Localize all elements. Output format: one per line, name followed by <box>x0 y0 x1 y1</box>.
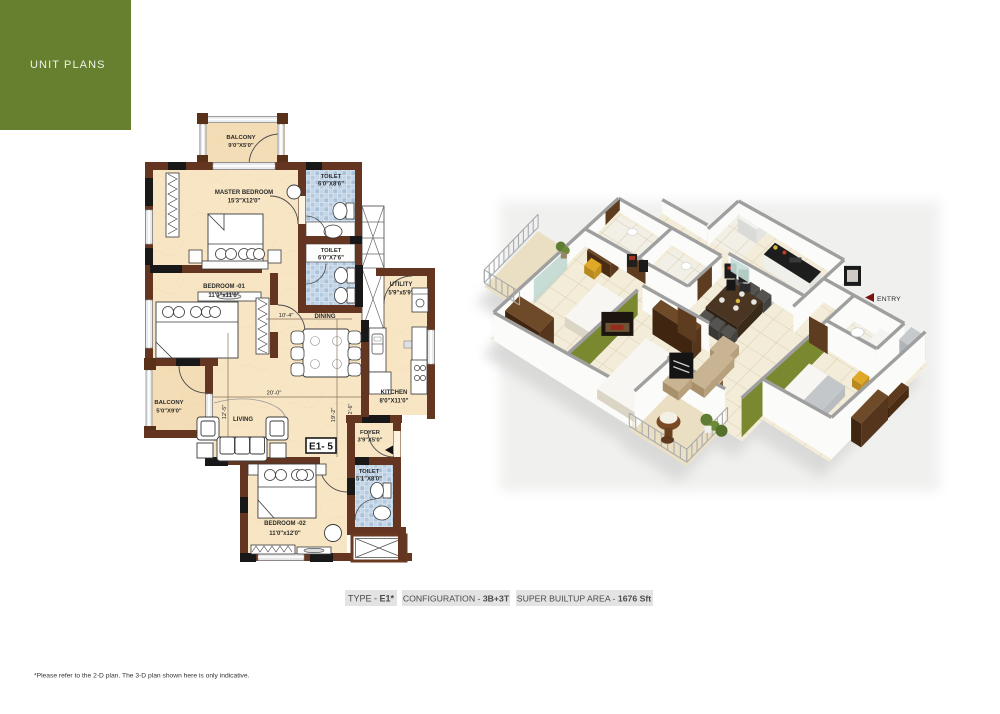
svg-text:BEDROOM -02: BEDROOM -02 <box>264 521 306 527</box>
svg-text:6'0"X8'6": 6'0"X8'6" <box>318 182 344 188</box>
svg-text:3'9"X5'0": 3'9"X5'0" <box>357 438 382 444</box>
svg-text:2'-6": 2'-6" <box>348 404 354 415</box>
svg-text:FOYER: FOYER <box>360 430 381 436</box>
svg-text:12'-5": 12'-5" <box>222 405 228 420</box>
svg-text:LIVING: LIVING <box>233 417 253 423</box>
svg-text:TOILET: TOILET <box>321 248 342 254</box>
svg-text:11'0"x12'0": 11'0"x12'0" <box>269 531 301 537</box>
svg-text:20'-0": 20'-0" <box>267 391 282 397</box>
svg-text:BEDROOM -01: BEDROOM -01 <box>203 284 245 290</box>
svg-text:TOILET: TOILET <box>321 174 342 180</box>
svg-text:9'0"X5'0": 9'0"X5'0" <box>228 143 254 149</box>
svg-text:6'0"X7'6": 6'0"X7'6" <box>318 256 344 262</box>
svg-text:UTILITY: UTILITY <box>390 282 413 288</box>
svg-text:CONFIGURATION - 3B+3T: CONFIGURATION - 3B+3T <box>403 594 510 604</box>
svg-text:MASTER BEDROOM: MASTER BEDROOM <box>215 190 273 196</box>
svg-text:5'0"X9'0": 5'0"X9'0" <box>156 409 182 415</box>
svg-text:UNIT PLANS: UNIT PLANS <box>30 59 106 71</box>
svg-text:10'-4": 10'-4" <box>279 313 294 319</box>
svg-text:TOILET: TOILET <box>359 469 380 475</box>
svg-text:E1- 5: E1- 5 <box>309 442 333 453</box>
svg-text:5'9"x5'9": 5'9"x5'9" <box>388 291 413 297</box>
svg-text:15'3"X12'0": 15'3"X12'0" <box>228 199 261 205</box>
svg-text:TYPE - E1*: TYPE - E1* <box>348 594 395 604</box>
svg-text:BALCONY: BALCONY <box>154 400 183 406</box>
svg-text:BALCONY: BALCONY <box>226 135 255 141</box>
svg-text:8'0"X11'0": 8'0"X11'0" <box>380 399 409 405</box>
svg-text:11'0"x11'0": 11'0"x11'0" <box>208 293 239 299</box>
svg-text:5'1"X8'0": 5'1"X8'0" <box>356 477 382 483</box>
svg-text:19'-2": 19'-2" <box>331 408 337 423</box>
svg-text:KITCHEN: KITCHEN <box>381 390 408 396</box>
svg-text:ENTRY: ENTRY <box>877 296 901 303</box>
svg-text:SUPER BUILTUP AREA - 1676 Sft: SUPER BUILTUP AREA - 1676 Sft <box>517 594 651 604</box>
svg-text:*Please refer to the 2-D plan.: *Please refer to the 2-D plan. The 3-D p… <box>34 673 250 680</box>
